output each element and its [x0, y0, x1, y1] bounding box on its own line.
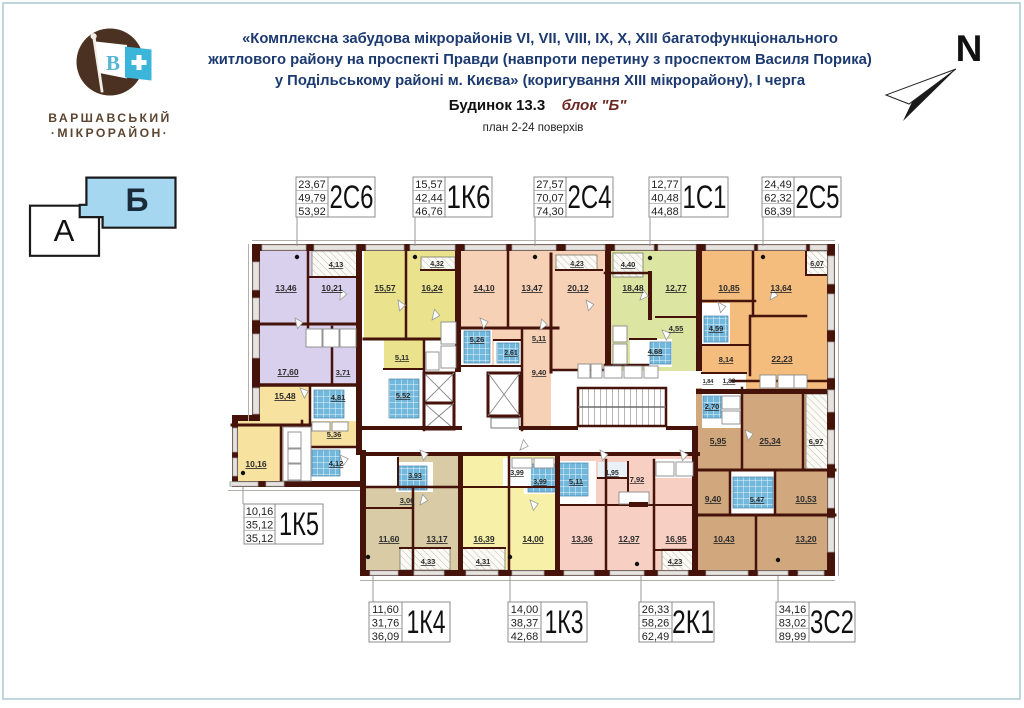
svg-text:13,47: 13,47	[521, 283, 543, 293]
svg-text:9,40: 9,40	[705, 494, 722, 504]
svg-text:5,26: 5,26	[470, 335, 485, 344]
svg-text:4,40: 4,40	[621, 260, 636, 269]
svg-text:4,33: 4,33	[421, 557, 436, 566]
svg-text:89,99: 89,99	[779, 631, 807, 643]
svg-text:6,07: 6,07	[810, 261, 824, 268]
svg-text:12,77: 12,77	[651, 179, 679, 191]
svg-text:35,12: 35,12	[246, 533, 274, 545]
svg-text:23,67: 23,67	[298, 179, 326, 191]
svg-text:26,33: 26,33	[642, 604, 670, 616]
svg-text:3,99: 3,99	[533, 479, 547, 486]
svg-text:5,36: 5,36	[327, 430, 342, 439]
svg-text:20,12: 20,12	[567, 283, 589, 293]
svg-text:Будинок 13.3: Будинок 13.3	[449, 97, 545, 114]
svg-text:4,32: 4,32	[430, 261, 444, 268]
svg-text:42,68: 42,68	[511, 631, 539, 643]
svg-text:15,48: 15,48	[274, 391, 296, 401]
svg-text:62,32: 62,32	[764, 192, 792, 204]
svg-text:10,43: 10,43	[713, 534, 735, 544]
svg-text:3,93: 3,93	[408, 473, 422, 480]
svg-text:2,70: 2,70	[705, 402, 720, 411]
svg-text:4,23: 4,23	[570, 261, 584, 268]
svg-text:38,37: 38,37	[511, 617, 539, 629]
svg-text:12,97: 12,97	[618, 534, 640, 544]
svg-text:46,76: 46,76	[415, 206, 443, 218]
svg-text:10,85: 10,85	[718, 283, 740, 293]
svg-text:70,07: 70,07	[536, 192, 564, 204]
svg-text:31,76: 31,76	[372, 617, 400, 629]
svg-text:10,16: 10,16	[245, 459, 267, 469]
svg-text:7,92: 7,92	[630, 475, 645, 484]
svg-text:5,11: 5,11	[569, 477, 583, 486]
svg-text:5,95: 5,95	[710, 436, 727, 446]
svg-text:1К3: 1К3	[545, 604, 584, 640]
svg-text:5,11: 5,11	[532, 334, 546, 343]
svg-text:36,09: 36,09	[372, 631, 400, 643]
svg-text:27,57: 27,57	[536, 179, 564, 191]
svg-text:3,71: 3,71	[336, 368, 351, 377]
svg-text:14,10: 14,10	[473, 283, 495, 293]
svg-text:34,16: 34,16	[779, 604, 807, 616]
svg-text:68,39: 68,39	[764, 206, 792, 218]
svg-text:44,88: 44,88	[651, 206, 679, 218]
svg-text:2С5: 2С5	[796, 179, 840, 215]
svg-text:А: А	[54, 213, 75, 248]
svg-text:8,14: 8,14	[719, 355, 734, 364]
svg-text:4,59: 4,59	[709, 324, 724, 333]
svg-text:11,60: 11,60	[379, 534, 400, 544]
svg-text:13,36: 13,36	[571, 534, 593, 544]
svg-text:6,97: 6,97	[809, 437, 824, 446]
svg-text:1,84: 1,84	[703, 379, 715, 385]
svg-text:58,26: 58,26	[642, 617, 670, 629]
svg-text:В: В	[106, 51, 120, 75]
svg-text:4,13: 4,13	[329, 260, 344, 269]
svg-text:1К6: 1К6	[447, 179, 491, 215]
svg-text:блок "Б": блок "Б"	[562, 97, 628, 114]
svg-text:12,77: 12,77	[665, 283, 687, 293]
svg-text:4,23: 4,23	[668, 557, 683, 566]
svg-text:62,49: 62,49	[642, 631, 670, 643]
svg-text:Б: Б	[126, 182, 149, 218]
svg-text:1,95: 1,95	[605, 470, 619, 477]
svg-text:13,46: 13,46	[275, 283, 297, 293]
svg-text:N: N	[956, 28, 983, 69]
svg-text:1С1: 1С1	[683, 179, 727, 215]
svg-text:2С4: 2С4	[568, 179, 612, 215]
svg-text:4,68: 4,68	[648, 347, 663, 356]
svg-text:15,57: 15,57	[415, 179, 443, 191]
svg-text:4,55: 4,55	[669, 324, 684, 333]
svg-text:83,02: 83,02	[779, 617, 807, 629]
svg-text:у Подільському районі м. Києва: у Подільському районі м. Києва» (коригув…	[275, 73, 806, 89]
svg-text:10,21: 10,21	[321, 283, 343, 293]
svg-text:14,00: 14,00	[522, 534, 544, 544]
svg-text:13,64: 13,64	[770, 283, 792, 293]
svg-text:18,48: 18,48	[622, 283, 644, 293]
svg-text:74,30: 74,30	[536, 206, 564, 218]
svg-text:9,40: 9,40	[532, 368, 547, 377]
svg-text:1,83: 1,83	[723, 378, 736, 385]
svg-text:3С2: 3С2	[810, 604, 854, 640]
svg-text:«Комплексна забудова мікрорайо: «Комплексна забудова мікрорайонів VI, VI…	[242, 31, 838, 47]
svg-text:10,53: 10,53	[795, 494, 817, 504]
svg-text:35,12: 35,12	[246, 519, 274, 531]
svg-text:13,17: 13,17	[426, 534, 448, 544]
svg-text:·МІКРОРАЙОН·: ·МІКРОРАЙОН·	[51, 125, 169, 140]
svg-text:2,61: 2,61	[504, 350, 518, 357]
svg-text:4,31: 4,31	[476, 557, 491, 566]
svg-text:49,79: 49,79	[298, 192, 326, 204]
svg-text:16,39: 16,39	[473, 534, 495, 544]
svg-text:5,52: 5,52	[396, 391, 411, 400]
svg-text:42,44: 42,44	[415, 192, 443, 204]
svg-text:25,34: 25,34	[759, 436, 781, 446]
svg-text:22,23: 22,23	[771, 354, 793, 364]
svg-text:3,99: 3,99	[510, 470, 524, 477]
svg-text:11,60: 11,60	[372, 604, 399, 616]
svg-text:13,20: 13,20	[795, 534, 817, 544]
svg-text:16,24: 16,24	[421, 283, 443, 293]
svg-text:житлового району на проспекті: житлового району на проспекті Правди (на…	[207, 52, 872, 68]
svg-text:5,47: 5,47	[750, 495, 765, 504]
svg-text:17,60: 17,60	[277, 367, 299, 377]
svg-text:2С6: 2С6	[330, 179, 374, 215]
svg-text:4,12: 4,12	[329, 459, 344, 468]
svg-text:4,81: 4,81	[331, 393, 346, 402]
svg-text:1К4: 1К4	[407, 604, 446, 640]
svg-text:14,00: 14,00	[511, 604, 539, 616]
svg-text:1К5: 1К5	[279, 506, 319, 542]
svg-text:план 2-24 поверхів: план 2-24 поверхів	[483, 122, 584, 134]
svg-text:ВАРШАВСЬКИЙ: ВАРШАВСЬКИЙ	[48, 110, 171, 125]
svg-text:10,16: 10,16	[246, 506, 274, 518]
svg-text:5,11: 5,11	[395, 353, 409, 362]
svg-text:15,57: 15,57	[374, 283, 396, 293]
svg-text:40,48: 40,48	[651, 192, 679, 204]
svg-text:53,92: 53,92	[298, 206, 326, 218]
svg-text:2К1: 2К1	[672, 604, 714, 640]
svg-text:24,49: 24,49	[764, 179, 792, 191]
svg-text:16,95: 16,95	[665, 534, 687, 544]
svg-text:3,06: 3,06	[400, 496, 415, 505]
